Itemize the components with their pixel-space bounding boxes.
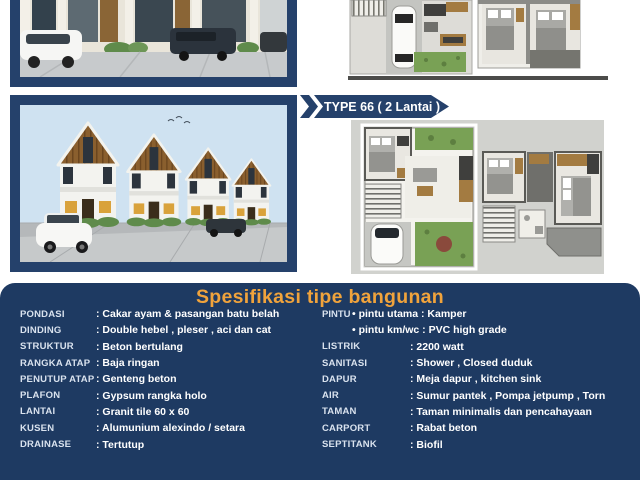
spec-value: : Baja ringan [96, 357, 160, 369]
spec-label: PONDASI [20, 309, 96, 320]
spec-label: SANITASI [322, 358, 410, 369]
floorplan-set-main [351, 120, 604, 274]
house-render-illustration [20, 105, 287, 262]
spec-column-right: PINTU • pintu utama : Kamper • pintu km/… [322, 306, 605, 453]
spec-value: : Biofil [410, 439, 443, 451]
spec-value: : Rabat beton [410, 422, 477, 434]
spec-row: LANTAI : Granit tile 60 x 60 [20, 404, 279, 420]
spec-value: : Meja dapur , kitchen sink [410, 373, 541, 385]
spec-value: • pintu km/wc : PVC high grade [352, 324, 507, 336]
floorplan-set-top [348, 0, 610, 82]
spec-row: AIR : Sumur pantek , Pompa jetpump , Tor… [322, 387, 605, 403]
spec-value: : Taman minimalis dan pencahayaan [410, 406, 592, 418]
spec-value: : Shower , Closed duduk [410, 357, 533, 369]
spec-value: : Cakar ayam & pasangan batu belah [96, 308, 279, 320]
spec-label: SEPTITANK [322, 439, 410, 450]
spec-label: PINTU [322, 309, 352, 320]
ground-line [348, 76, 608, 80]
floorplan-top-illustration [348, 0, 610, 82]
spec-label: DINDING [20, 325, 96, 336]
spec-row: CARPORT : Rabat beton [322, 420, 605, 436]
spec-row: PLAFON : Gypsum rangka holo [20, 387, 279, 403]
spec-value: : 2200 watt [410, 341, 464, 353]
first-floor-plan-top [350, 0, 472, 74]
spec-row: PONDASI : Cakar ayam & pasangan batu bel… [20, 306, 279, 322]
spec-value: : Granit tile 60 x 60 [96, 406, 189, 418]
spec-row: DINDING : Double hebel , pleser , aci da… [20, 322, 279, 338]
spec-value: : Gypsum rangka holo [96, 390, 207, 402]
spec-row: KUSEN : Alumunium alexindo / setara [20, 420, 279, 436]
spec-value: : Double hebel , pleser , aci dan cat [96, 324, 271, 336]
spec-label: LISTRIK [322, 341, 410, 352]
spec-label: LANTAI [20, 406, 96, 417]
spec-row: SANITASI : Shower , Closed duduk [322, 355, 605, 371]
spec-value: : Genteng beton [96, 373, 177, 385]
house-render-photo-top [10, 0, 297, 87]
spec-label: PLAFON [20, 390, 96, 401]
spec-row-pintu-1: PINTU • pintu utama : Kamper [322, 306, 605, 322]
spec-row: DAPUR : Meja dapur , kitchen sink [322, 371, 605, 387]
spec-row: TAMAN : Taman minimalis dan pencahayaan [322, 404, 605, 420]
spec-label: CARPORT [322, 423, 410, 434]
house-render-photo-main [10, 95, 297, 272]
second-floor-plan-top [478, 0, 580, 68]
spec-label: DAPUR [322, 374, 410, 385]
spec-label: AIR [322, 390, 410, 401]
spec-label: TAMAN [322, 406, 410, 417]
type-banner-label: TYPE 66 ( 2 Lantai ) [326, 94, 438, 119]
floorplan-main-illustration [351, 120, 604, 274]
street-render-illustration [20, 0, 287, 77]
spec-label: KUSEN [20, 423, 96, 434]
spec-label: RANGKA ATAP [20, 358, 96, 369]
spec-value: : Alumunium alexindo / setara [96, 422, 245, 434]
spec-row: STRUKTUR : Beton bertulang [20, 339, 279, 355]
spec-row: DRAINASE : Tertutup [20, 436, 279, 452]
far-right-car [260, 32, 287, 52]
spec-value: : Tertutup [96, 439, 144, 451]
spec-column-left: PONDASI : Cakar ayam & pasangan batu bel… [20, 306, 279, 453]
spec-row: LISTRIK : 2200 watt [322, 339, 605, 355]
spec-value: : Beton bertulang [96, 341, 183, 353]
spec-row: PENUTUP ATAP : Genteng beton [20, 371, 279, 387]
spec-value: • pintu utama : Kamper [352, 308, 467, 320]
spec-row-pintu-2: • pintu km/wc : PVC high grade [322, 322, 605, 338]
spec-label: PENUTUP ATAP [20, 374, 96, 385]
spec-row: RANGKA ATAP : Baja ringan [20, 355, 279, 371]
spec-label: DRAINASE [20, 439, 96, 450]
spec-label: STRUKTUR [20, 341, 96, 352]
type-banner: TYPE 66 ( 2 Lantai ) [300, 94, 454, 119]
spec-value: : Sumur pantek , Pompa jetpump , Torn [410, 390, 605, 402]
spec-row: SEPTITANK : Biofil [322, 436, 605, 452]
first-floor-plan-main [362, 125, 476, 269]
spec-panel: Spesifikasi tipe bangunan PONDASI : Caka… [0, 283, 640, 480]
